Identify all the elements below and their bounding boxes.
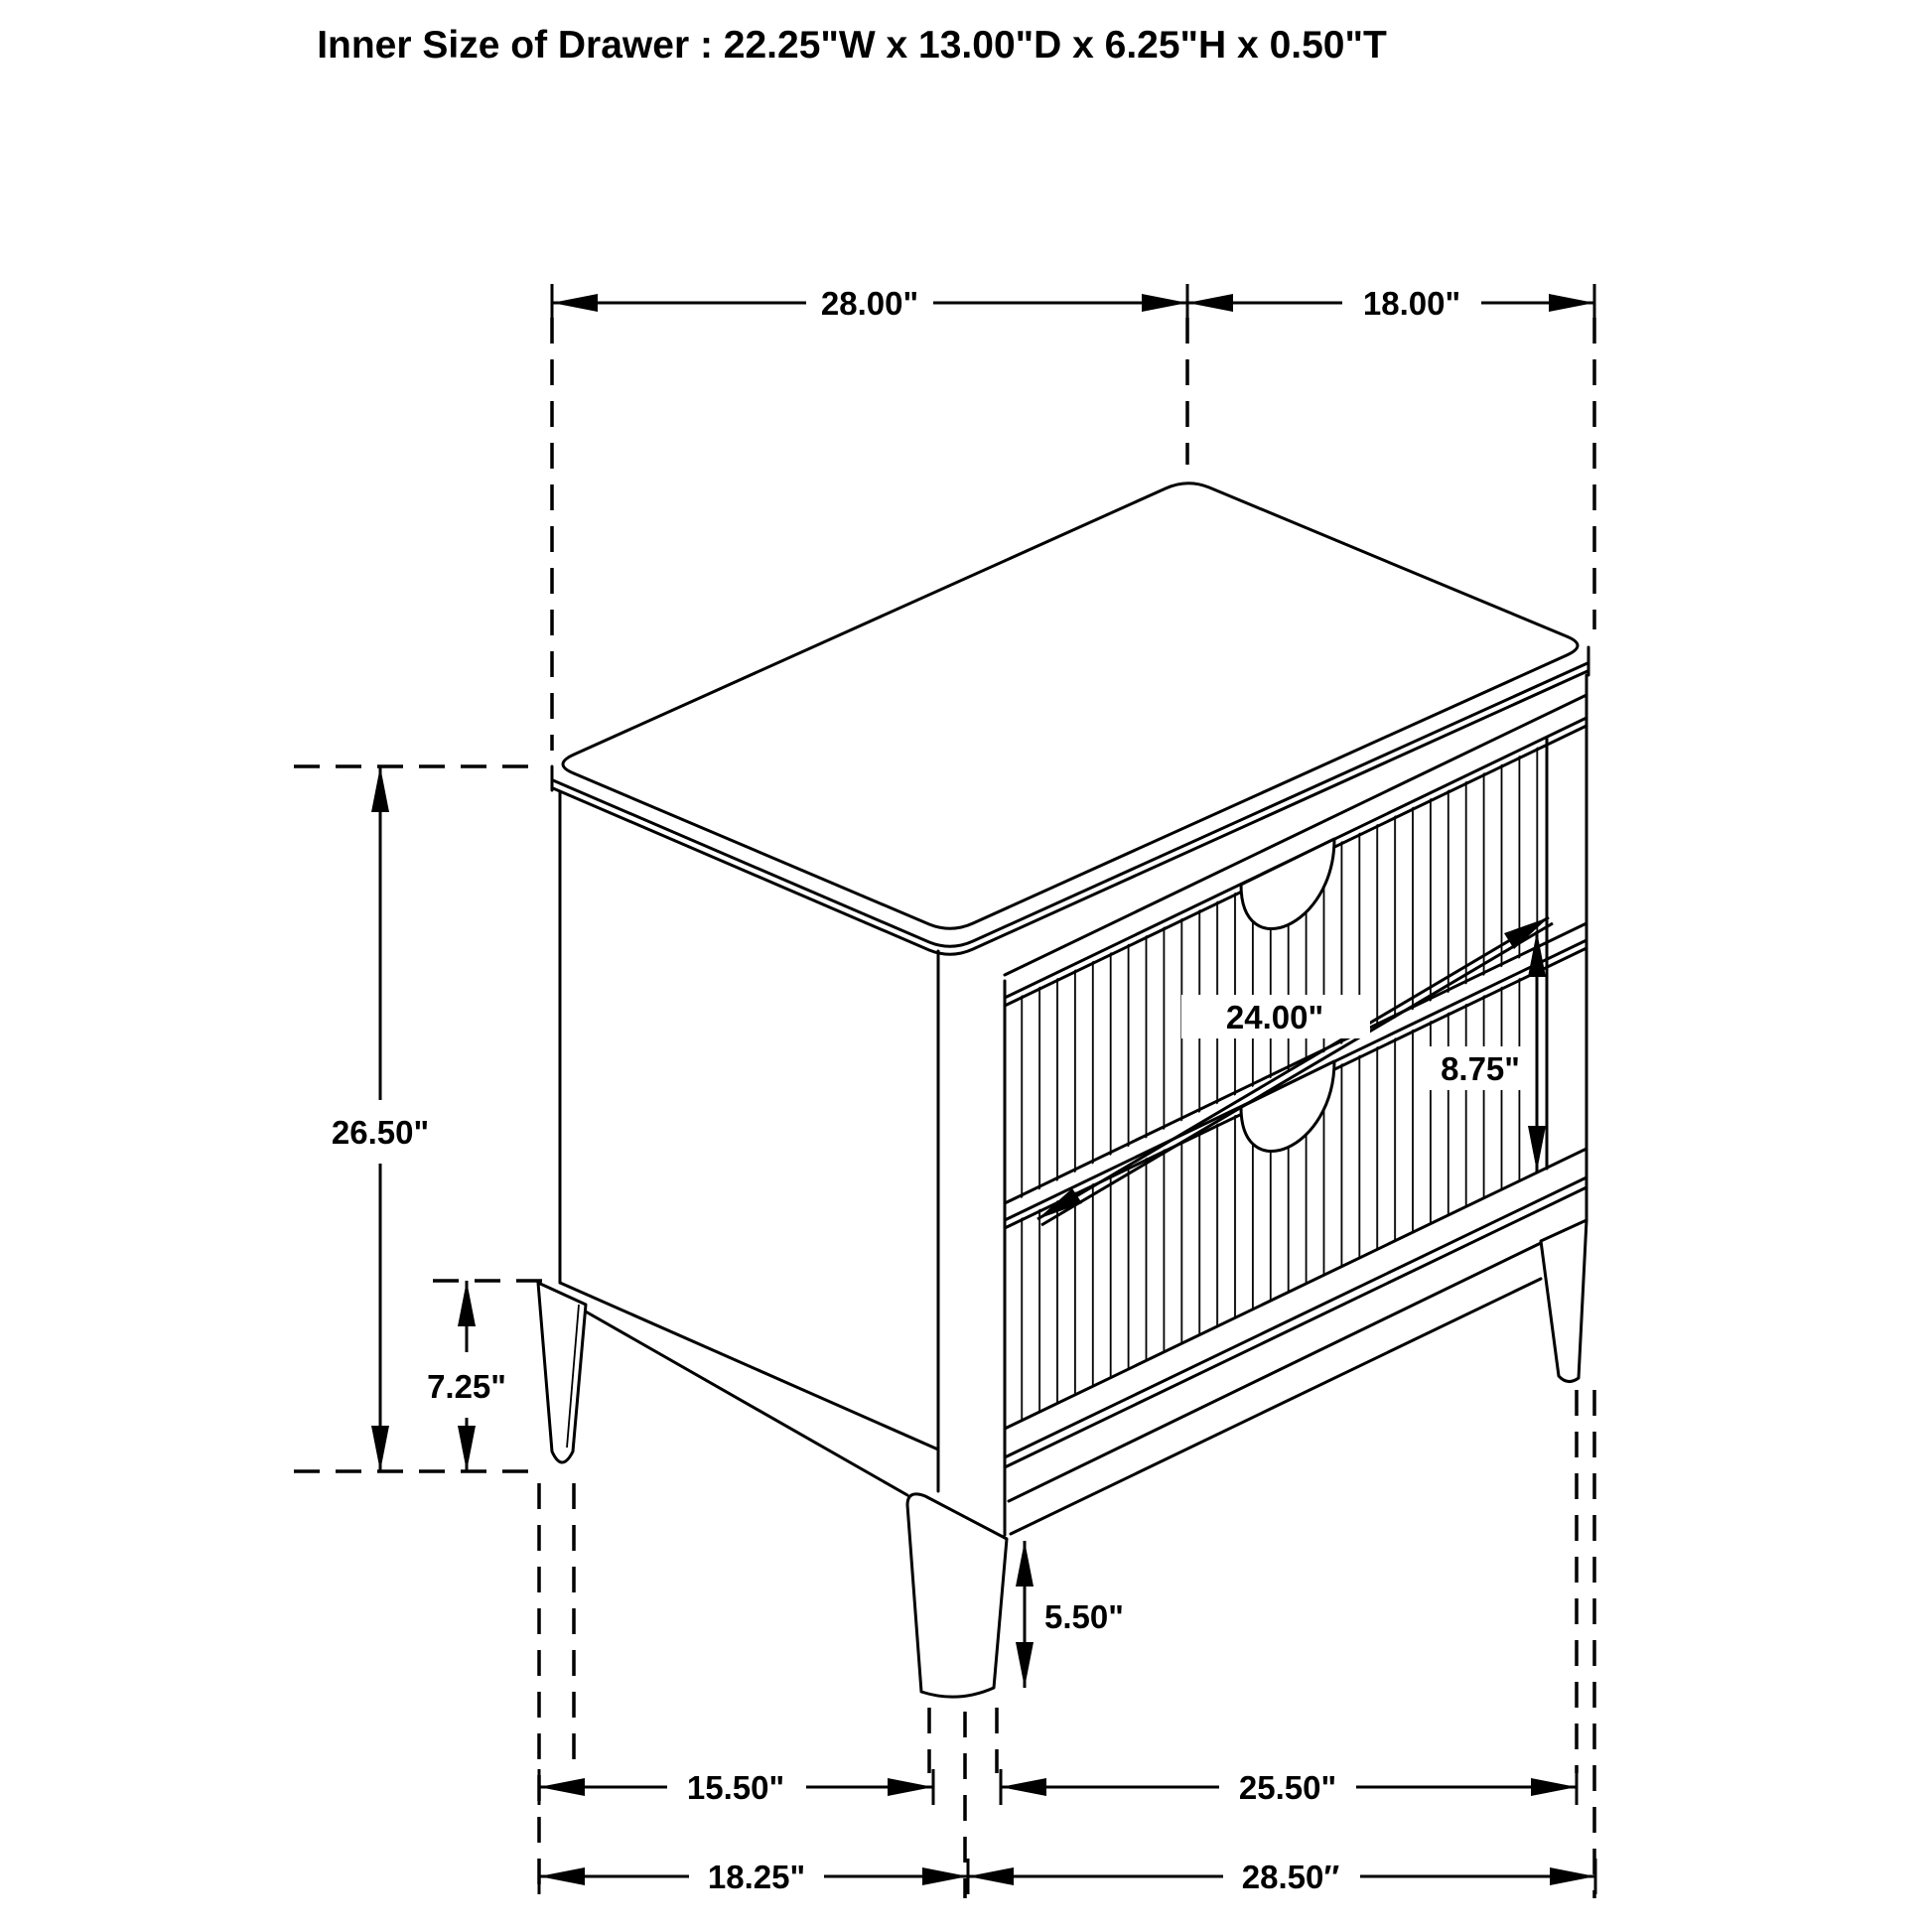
dim-base-depth-label: 18.25"	[708, 1859, 805, 1895]
dim-drawer-front-height-label: 8.75"	[1441, 1050, 1520, 1087]
dim-top-depth-label: 18.00"	[1363, 285, 1460, 322]
dim-front-leg-height-label: 5.50"	[1044, 1598, 1124, 1635]
dim-side-leg-height-label: 7.25"	[427, 1368, 506, 1405]
dimension-diagram-page: Inner Size of Drawer : 22.25"W x 13.00"D…	[0, 0, 1932, 1932]
diagram-title: Inner Size of Drawer : 22.25"W x 13.00"D…	[317, 24, 1387, 67]
dim-base-width-label: 28.50″	[1242, 1859, 1340, 1895]
dim-top-width-label: 28.00"	[821, 285, 918, 322]
dim-feet-gap-front-label: 25.50"	[1239, 1769, 1336, 1806]
nightstand-dimension-diagram: Inner Size of Drawer : 22.25"W x 13.00"D…	[0, 0, 1932, 1932]
dim-total-height-label: 26.50"	[332, 1114, 429, 1151]
dim-feet-gap-side-label: 15.50"	[687, 1769, 784, 1806]
dim-drawer-width-label: 24.00"	[1226, 999, 1323, 1035]
